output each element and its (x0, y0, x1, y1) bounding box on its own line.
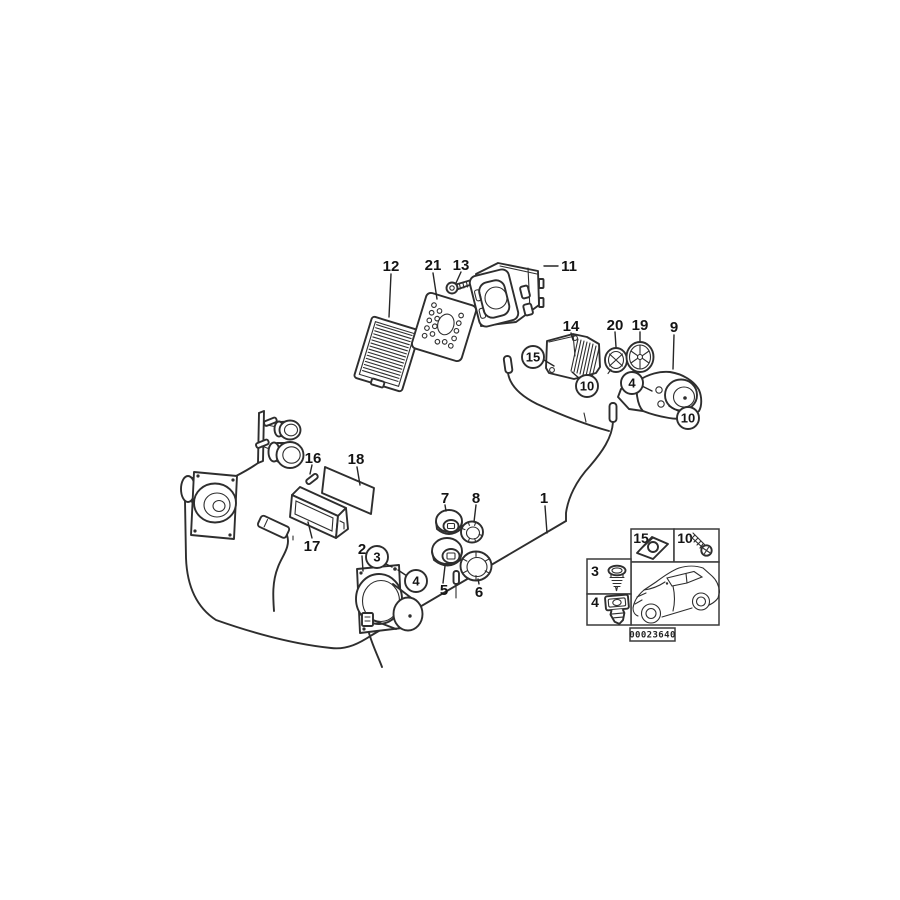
image-id: 00023640 (629, 631, 676, 641)
disc-part-20 (605, 348, 627, 374)
callout-15: 15 (526, 350, 540, 365)
callout-9: 9 (670, 319, 678, 336)
callout-7: 7 (441, 490, 449, 507)
callout-6: 6 (475, 584, 483, 601)
callout-8: 8 (472, 490, 480, 507)
ring-part-6 (461, 552, 492, 581)
harness-connector (503, 356, 512, 374)
grommet-part-5 (432, 538, 462, 566)
tweeter-large (269, 442, 304, 468)
callout-10: 10 (580, 379, 594, 394)
clip-part-16 (305, 473, 318, 485)
grommet-part-7 (436, 510, 462, 534)
speaker-grille-part-12 (353, 316, 420, 393)
pin-spacer (454, 571, 460, 598)
inset-label-10: 10 (677, 530, 693, 546)
parts-diagram-page: 3 4 4 10 10 15 1 2 5 6 7 8 9 11 12 13 14… (0, 0, 900, 900)
harness-connector (610, 403, 617, 422)
callout-16: 16 (305, 450, 322, 467)
inset-label-3: 3 (591, 563, 599, 579)
callout-12: 12 (383, 258, 400, 275)
callout-4: 4 (412, 574, 420, 589)
wiring-harness (503, 356, 616, 521)
housing-part-11 (468, 263, 543, 328)
ring-part-8 (461, 522, 483, 543)
shelf-connector-lead (257, 515, 290, 611)
left-square-speaker (181, 472, 237, 539)
callout-5: 5 (440, 582, 448, 599)
callout-19: 19 (632, 317, 649, 334)
callout-10b: 10 (681, 411, 695, 426)
inset-label-4: 4 (591, 594, 599, 610)
callout-2: 2 (358, 541, 366, 558)
tweeter-small (275, 421, 301, 440)
callout-11: 11 (561, 258, 577, 275)
callout-3: 3 (373, 550, 380, 565)
callout-4b: 4 (628, 376, 636, 391)
callout-1: 1 (540, 490, 548, 507)
callout-18: 18 (348, 451, 365, 468)
callout-14: 14 (563, 318, 580, 335)
callout-17: 17 (304, 538, 321, 555)
adapter-plate-part-21 (411, 292, 478, 363)
callout-21: 21 (425, 257, 442, 274)
fastener-kit-inset: 15 10 3 4 (587, 529, 720, 641)
exploded-parts-diagram: 3 4 4 10 10 15 1 2 5 6 7 8 9 11 12 13 14… (0, 0, 900, 900)
callout-20: 20 (607, 317, 624, 334)
spoked-disc-part-19 (627, 342, 654, 372)
callout-13: 13 (453, 257, 470, 274)
